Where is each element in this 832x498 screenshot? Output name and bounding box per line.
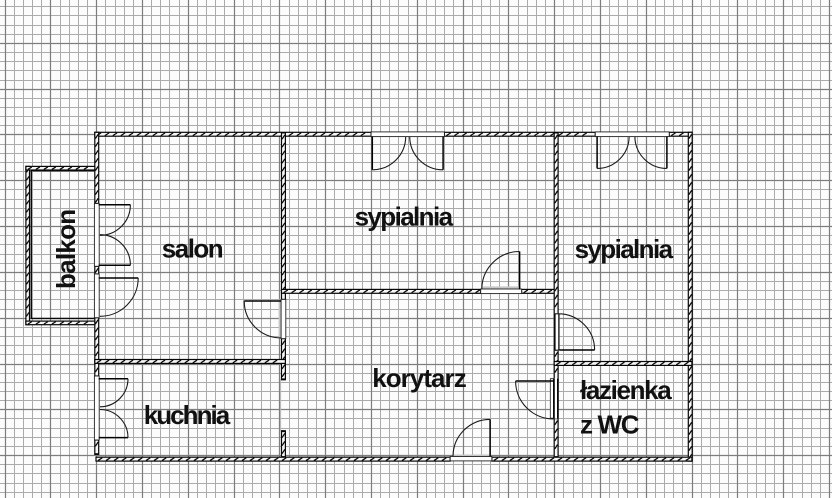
svg-text:sypialnia: sypialnia <box>575 234 674 264</box>
svg-text:sypialnia: sypialnia <box>355 202 454 232</box>
svg-text:korytarz: korytarz <box>372 363 467 393</box>
svg-text:łazienka: łazienka <box>580 375 672 405</box>
svg-text:z WC: z WC <box>580 410 640 440</box>
svg-text:balkon: balkon <box>51 210 81 289</box>
svg-text:salon: salon <box>162 234 223 264</box>
svg-text:kuchnia: kuchnia <box>144 400 231 430</box>
